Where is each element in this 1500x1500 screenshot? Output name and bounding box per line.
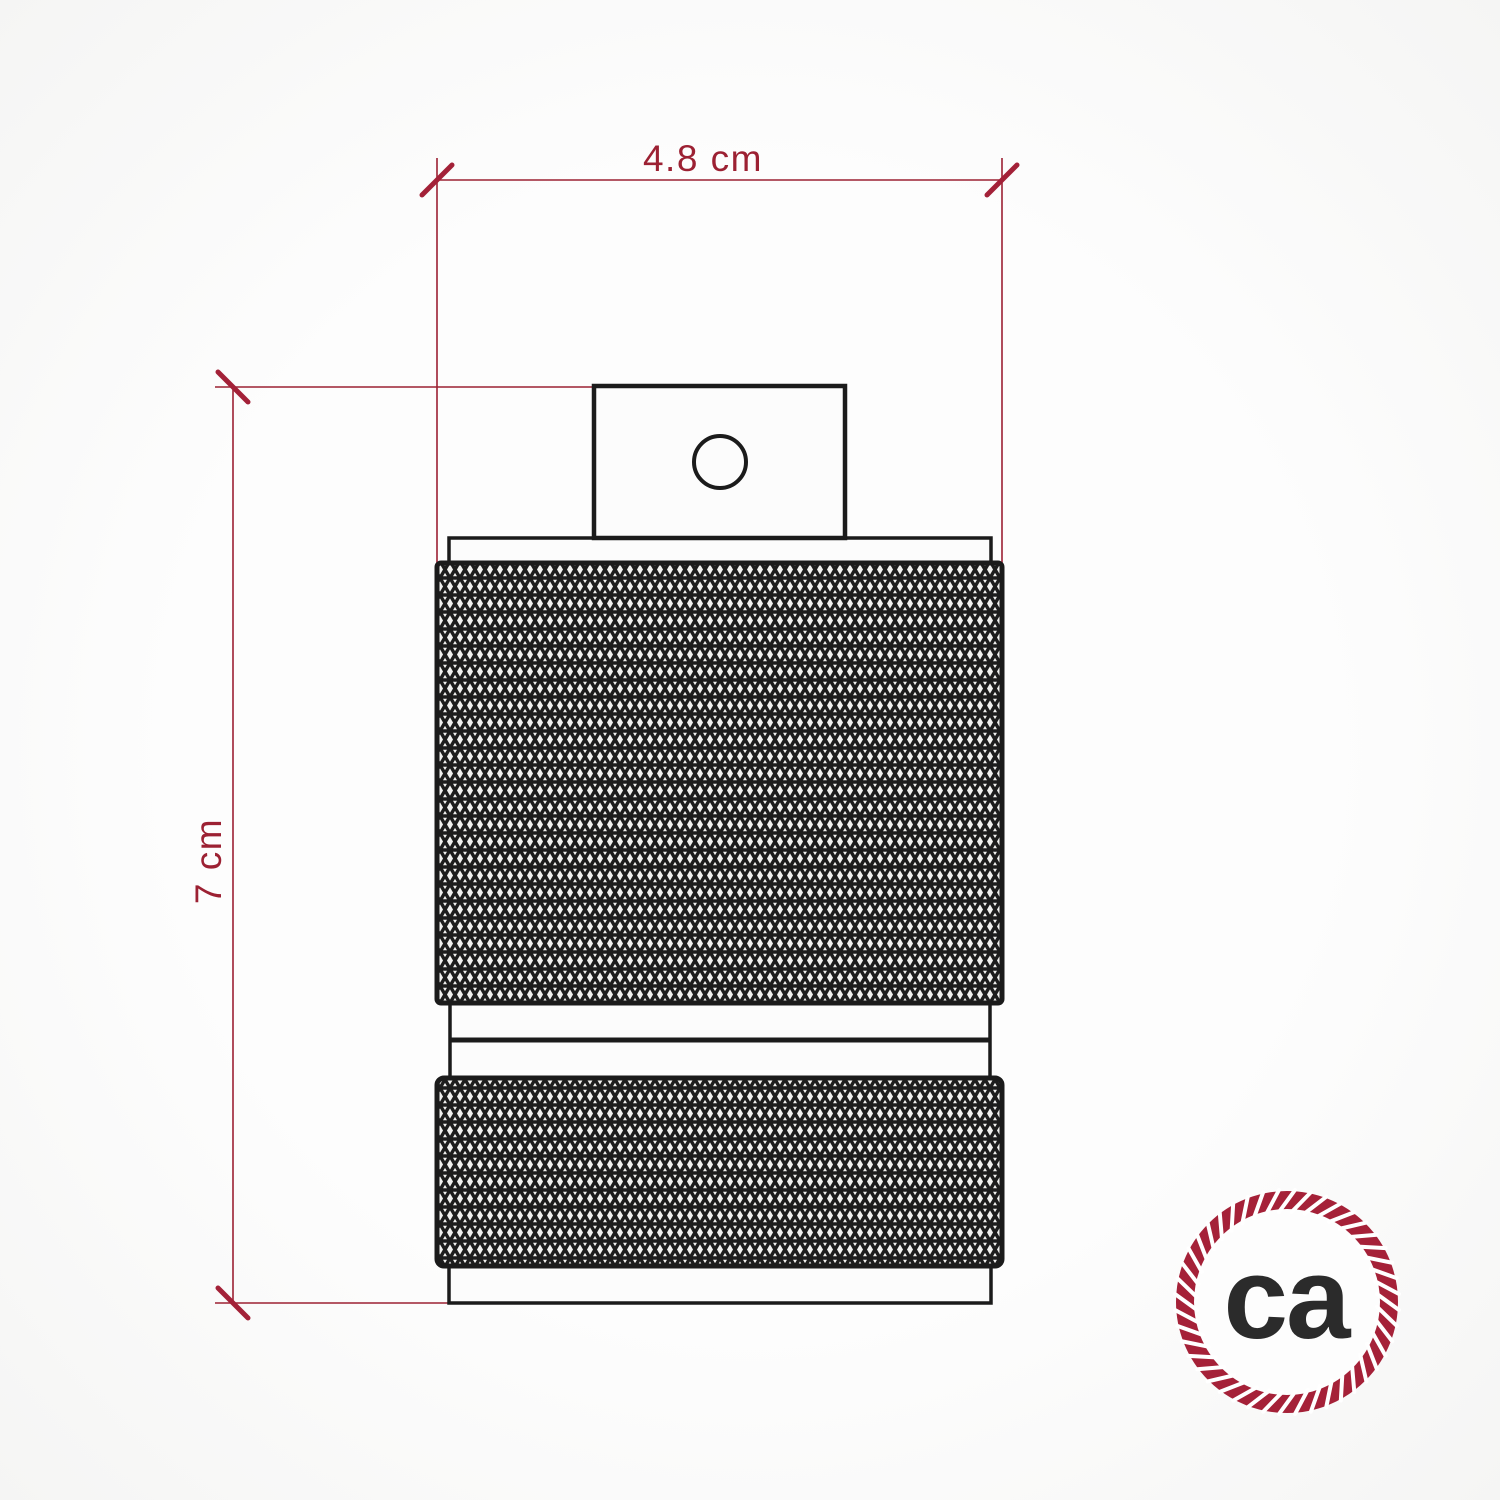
socket-drawing xyxy=(437,386,1002,1303)
width-dimension-label: 4.8 cm xyxy=(643,138,763,179)
socket-bottom-flange xyxy=(449,1266,991,1303)
technical-drawing-canvas: 4.8 cm 7 cm ca xyxy=(0,0,1500,1500)
socket-knurled-ring xyxy=(437,1078,1002,1266)
logo-text: ca xyxy=(1223,1233,1352,1363)
height-dimension-label: 7 cm xyxy=(188,818,229,904)
brand-logo: ca xyxy=(1175,1190,1399,1414)
socket-upper-flange xyxy=(449,538,991,564)
socket-cable-entry-hole xyxy=(694,436,746,488)
socket-knurled-body xyxy=(437,563,1002,1003)
